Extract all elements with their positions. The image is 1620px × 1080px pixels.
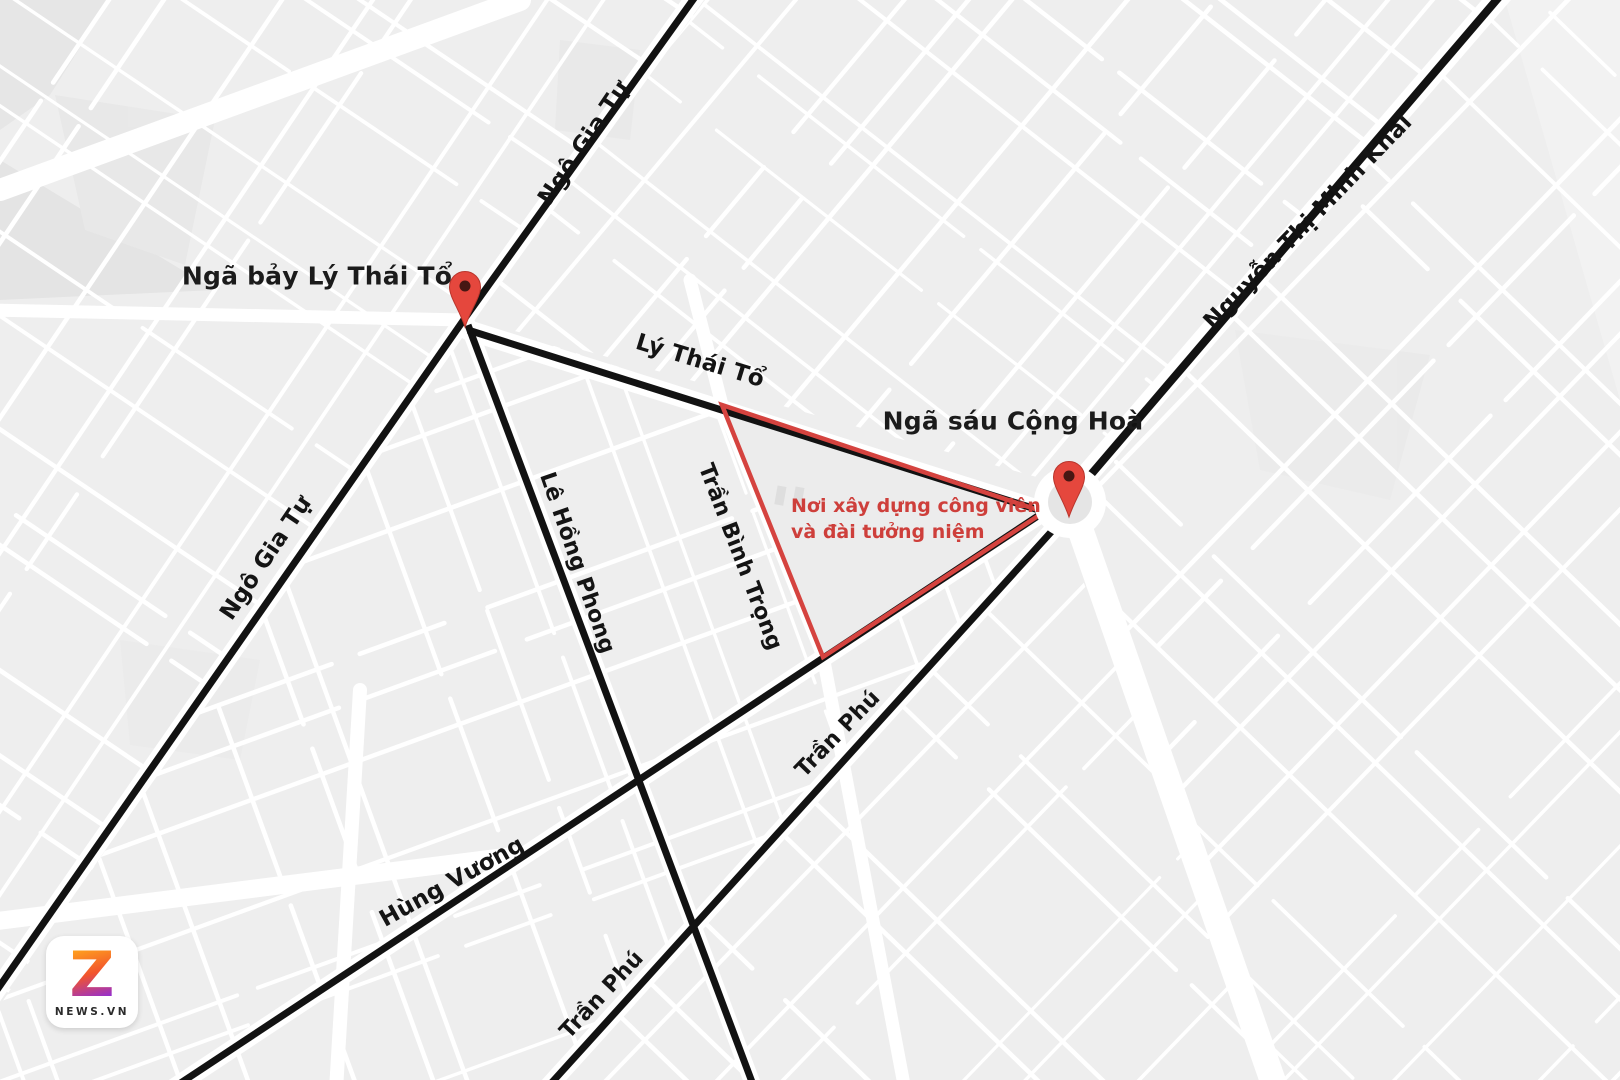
znews-logo-domain: NEWS.VN [55, 1006, 129, 1018]
park-annotation-line2: và đài tưởng niệm [791, 519, 1041, 545]
park-annotation: Nơi xây dựng công viên và đài tưởng niệm [791, 493, 1041, 545]
label-nga-sau-cong-hoa: Ngã sáu Cộng Hoà [883, 407, 1144, 436]
map-infographic: Ngã bảy Lý Thái Tổ Ngã sáu Cộng Hoà Ngô … [0, 0, 1620, 1080]
znews-logo-letter: Z [70, 946, 115, 1004]
park-annotation-line1: Nơi xây dựng công viên [791, 493, 1041, 519]
znews-logo: Z NEWS.VN [46, 936, 138, 1028]
label-nga-bay-ly-thai-to: Ngã bảy Lý Thái Tổ [182, 262, 452, 291]
